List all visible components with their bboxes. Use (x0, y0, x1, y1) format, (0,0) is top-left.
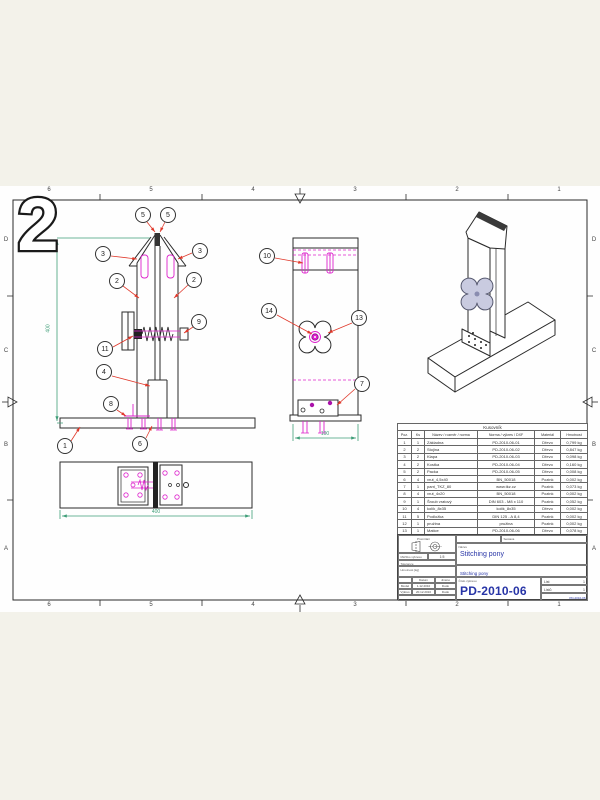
cell-nazev: Základna (425, 439, 478, 446)
col-header-poz: Poz. (398, 431, 412, 439)
cell-ks: 2 (412, 461, 425, 468)
cell-nazev: kolík_8x35 (425, 505, 478, 512)
weight-label: Hmotnost [kg] (401, 568, 420, 572)
balloon-callout: 5 (160, 207, 176, 223)
scale-label: Měřítko výkresu (401, 555, 422, 559)
cell-nazev: pružina (425, 520, 478, 527)
cell-ks: 4 (412, 475, 425, 482)
cell-material: Dřevo (535, 439, 561, 446)
row-vykres-label: Výkres (399, 590, 411, 594)
parts-table-row: 1 1 Základna PD-2010-06-01 Dřevo 0,799 k… (398, 439, 588, 446)
balloon-callout: 7 (354, 376, 370, 392)
empty-top-cell (456, 535, 501, 543)
cell-material: Pozink (535, 490, 561, 497)
cell-ks: 1 (412, 439, 425, 446)
cell-material: Pozink (535, 498, 561, 505)
cell-poz: 10 (398, 505, 412, 512)
balloon-callout: 3 (95, 246, 111, 262)
zone-label-left: B (1, 442, 11, 448)
balloon-callout: 4 (96, 364, 112, 380)
cell-material: Pozink (535, 475, 561, 482)
col-header-hmotnost: Hmotnost (561, 431, 588, 439)
cell-poz: 7 (398, 483, 412, 490)
zone-label-bottom: 6 (43, 602, 55, 608)
cell-norma: pružina (478, 520, 535, 527)
cell-nazev: Šroub vratový (425, 498, 478, 505)
balloon-callout: 2 (109, 273, 125, 289)
weight-cell: Hmotnost [kg] (398, 566, 456, 577)
zone-label-top: 3 (349, 187, 361, 193)
cell-poz: 5 (398, 468, 412, 475)
cell-material: Dřevo (535, 461, 561, 468)
cell-poz: 11 (398, 512, 412, 519)
drawing-title: Stitching pony (460, 551, 504, 558)
balloon-callout: 8 (103, 396, 119, 412)
sheet-number-stamp: 2 (0, 186, 76, 258)
cell-ks: 2 (412, 446, 425, 453)
cell-hmotnost: 0,847 kg (561, 446, 588, 453)
first-angle-projection-icon (411, 541, 445, 552)
cell-hmotnost: 0,008 kg (561, 468, 588, 475)
screenshot-canvas: 6 5 4 3 2 1 6 5 4 3 2 1 D C B A D C B A … (0, 0, 600, 800)
zone-label-left: A (1, 546, 11, 552)
col-header-norma: Norma / výkres / DXF (478, 431, 535, 439)
zone-label-bottom: 5 (145, 602, 157, 608)
scale-value-cell: 1:5 (428, 553, 456, 560)
cell-ks: 2 (412, 453, 425, 460)
zone-label-bottom: 2 (451, 602, 463, 608)
cell-hmotnost: 0,002 kg (561, 520, 588, 527)
parts-table-row: 6 4 vrut_4,5x40 BN_50018 Pozink 0,002 kg (398, 475, 588, 482)
cell-hmotnost: 0,052 kg (561, 498, 588, 505)
scale-value: 1:5 (429, 554, 455, 559)
cell-material: Dřevo (535, 446, 561, 453)
title-main-cell: Název Stitching pony (456, 543, 588, 565)
parts-table-row: 4 2 Kostka PD-2010-06-04 Dřevo 0,160 kg (398, 461, 588, 468)
cell-hmotnost: 0,002 kg (561, 512, 588, 519)
cell-hmotnost: 0,002 kg (561, 490, 588, 497)
sheets-cell: Listů 1 (541, 585, 588, 593)
cell-norma: PD-2010-06-04 (478, 461, 535, 468)
zone-label-right: A (589, 546, 599, 552)
drawing-number-cell: Číslo výkresu PD-2010-06 (456, 577, 541, 601)
cell-nazev: pant_TKZ_80 (425, 483, 478, 490)
cell-material: Pozink (535, 483, 561, 490)
zone-label-right: B (589, 442, 599, 448)
zone-label-top: 1 (553, 187, 565, 193)
name-header: Jméno (436, 578, 455, 582)
zone-label-top: 5 (145, 187, 157, 193)
balloon-callout: 9 (191, 314, 207, 330)
balloon-callout: 2 (186, 272, 202, 288)
drawing-subtitle: Stitching pony (460, 571, 488, 576)
cell-nazev: Podložka (425, 512, 478, 519)
parts-table-row: 2 2 Stojina PD-2010-06-02 Dřevo 0,847 kg (398, 446, 588, 453)
cell-hmotnost: 0,799 kg (561, 439, 588, 446)
dimension-label-base-width: 400 (145, 510, 167, 515)
col-header-nazev: Název / rozměr / norma (425, 431, 478, 439)
balloon-callout: 1 (57, 438, 73, 454)
cell-nazev: vrut_4,5x40 (425, 475, 478, 482)
cell-poz: 12 (398, 520, 412, 527)
col-header-material: Materiál (535, 431, 561, 439)
parts-table: Kusovník Poz. Ks Název / rozměr / norma … (397, 423, 588, 542)
front-view (60, 233, 255, 430)
cell-ks: 5 (412, 512, 425, 519)
row-model-date: 1.12.2010 (413, 584, 434, 588)
cell-poz: 2 (398, 446, 412, 453)
projection-label: Promítání (417, 537, 430, 541)
balloon-callout: 3 (192, 243, 208, 259)
cell-ks: 4 (412, 505, 425, 512)
sheet-value: 1 (583, 580, 585, 584)
scale-label-cell: Měřítko výkresu (398, 553, 428, 560)
balloon-callout: 13 (351, 310, 367, 326)
cell-norma: www.tkz.cz (478, 483, 535, 490)
cell-hmotnost: 0,002 kg (561, 505, 588, 512)
parts-table-row: 5 2 Packa PD-2010-06-05 Dřevo 0,008 kg (398, 468, 588, 475)
zone-label-bottom: 3 (349, 602, 361, 608)
cell-hmotnost: 0,002 kg (561, 475, 588, 482)
row-vykres-name: Dudo (436, 590, 455, 594)
col-header-ks: Ks (412, 431, 425, 439)
cell-norma: kolík_8x35 (478, 505, 535, 512)
cell-ks: 4 (412, 490, 425, 497)
cell-material: Dřevo (535, 505, 561, 512)
parts-table-row: 10 4 kolík_8x35 kolík_8x35 Dřevo 0,002 k… (398, 505, 588, 512)
cell-poz: 3 (398, 453, 412, 460)
assembly-cell: Sestava (501, 535, 588, 543)
assembly-label: Sestava (504, 537, 515, 541)
zone-label-bottom: 1 (553, 602, 565, 608)
row-model-name: Dudo (436, 584, 455, 588)
dimension-label-side-width: 100 (314, 432, 336, 437)
footer-number-cell: PD-2010-06 (541, 593, 588, 601)
zone-label-right: C (589, 348, 599, 354)
balloon-callout: 14 (261, 303, 277, 319)
parts-table-row: 9 1 Šroub vratový DIN 603 - M8 x 110 Poz… (398, 498, 588, 505)
isometric-view (428, 212, 555, 392)
stamp-digit: 2 (17, 186, 58, 258)
cell-norma: DIN 125 - A 8,4 (478, 512, 535, 519)
cell-nazev: Packa (425, 468, 478, 475)
tolerance-label: Tolerance (401, 562, 414, 566)
zone-label-right: D (589, 237, 599, 243)
cell-material: Dřevo (535, 453, 561, 460)
drawing-number: PD-2010-06 (460, 584, 527, 598)
zone-label-top: 4 (247, 187, 259, 193)
cell-ks: 1 (412, 520, 425, 527)
cell-material: Pozink (535, 512, 561, 519)
balloon-callout: 6 (132, 436, 148, 452)
cell-ks: 2 (412, 468, 425, 475)
row-model-label: Model (399, 584, 411, 588)
plan-view (60, 462, 252, 508)
footer-drawing-number: PD-2010-06 (569, 596, 585, 600)
cell-nazev: Klapa (425, 453, 478, 460)
row-vykres-date: 20.12.2010 (413, 590, 434, 594)
sheet-label: List (544, 580, 549, 584)
projection-cell: Promítání (398, 535, 456, 553)
cell-norma: BN_50018 (478, 475, 535, 482)
sheets-label: Listů (544, 588, 551, 592)
cell-poz: 6 (398, 475, 412, 482)
sheets-value: 1 (583, 588, 585, 592)
datename-filler-cell (398, 595, 456, 601)
cell-hmotnost: 0,160 kg (561, 461, 588, 468)
cell-norma: PD-2010-06-02 (478, 446, 535, 453)
parts-table-row: 3 2 Klapa PD-2010-06-03 Dřevo 0,098 kg (398, 453, 588, 460)
dimension-label-height: 400 (47, 318, 52, 340)
cell-poz: 4 (398, 461, 412, 468)
name-label: Název (459, 545, 468, 549)
balloon-callout: 10 (259, 248, 275, 264)
title-block: Promítání Měřítko výkresu 1:5 Toler (397, 534, 587, 600)
zone-label-top: 2 (451, 187, 463, 193)
parts-table-title: Kusovník (398, 424, 588, 431)
cell-norma: PD-2010-06-01 (478, 439, 535, 446)
balloon-callout: 11 (97, 341, 113, 357)
cell-hmotnost: 0,098 kg (561, 453, 588, 460)
parts-table-row: 12 1 pružina pružina Pozink 0,002 kg (398, 520, 588, 527)
side-view (290, 238, 361, 433)
cell-nazev: Kostka (425, 461, 478, 468)
cell-material: Pozink (535, 520, 561, 527)
cell-nazev: vrut_4x20 (425, 490, 478, 497)
parts-table-row: 11 5 Podložka DIN 125 - A 8,4 Pozink 0,0… (398, 512, 588, 519)
sheet-cell: List 1 (541, 577, 588, 585)
date-header: Datum (413, 578, 434, 582)
title-sub-cell: Stitching pony (456, 565, 588, 577)
parts-table-row: 7 1 pant_TKZ_80 www.tkz.cz Pozink 0,073 … (398, 483, 588, 490)
cell-norma: PD-2010-06-03 (478, 453, 535, 460)
cell-norma: DIN 603 - M8 x 110 (478, 498, 535, 505)
cell-ks: 1 (412, 498, 425, 505)
cell-hmotnost: 0,073 kg (561, 483, 588, 490)
cell-ks: 1 (412, 483, 425, 490)
cell-norma: PD-2010-06-05 (478, 468, 535, 475)
cell-poz: 1 (398, 439, 412, 446)
cell-material: Dřevo (535, 468, 561, 475)
cell-poz: 8 (398, 490, 412, 497)
zone-label-left: C (1, 348, 11, 354)
parts-table-row: 8 4 vrut_4x20 BN_50018 Pozink 0,002 kg (398, 490, 588, 497)
drawing-sheet: 6 5 4 3 2 1 6 5 4 3 2 1 D C B A D C B A … (0, 186, 600, 612)
cell-norma: BN_50018 (478, 490, 535, 497)
cell-nazev: Stojina (425, 446, 478, 453)
zone-label-bottom: 4 (247, 602, 259, 608)
parts-table-body: 1 1 Základna PD-2010-06-01 Dřevo 0,799 k… (398, 439, 588, 542)
cell-poz: 9 (398, 498, 412, 505)
balloon-callout: 5 (135, 207, 151, 223)
drawing-number-label: Číslo výkresu (459, 579, 477, 583)
